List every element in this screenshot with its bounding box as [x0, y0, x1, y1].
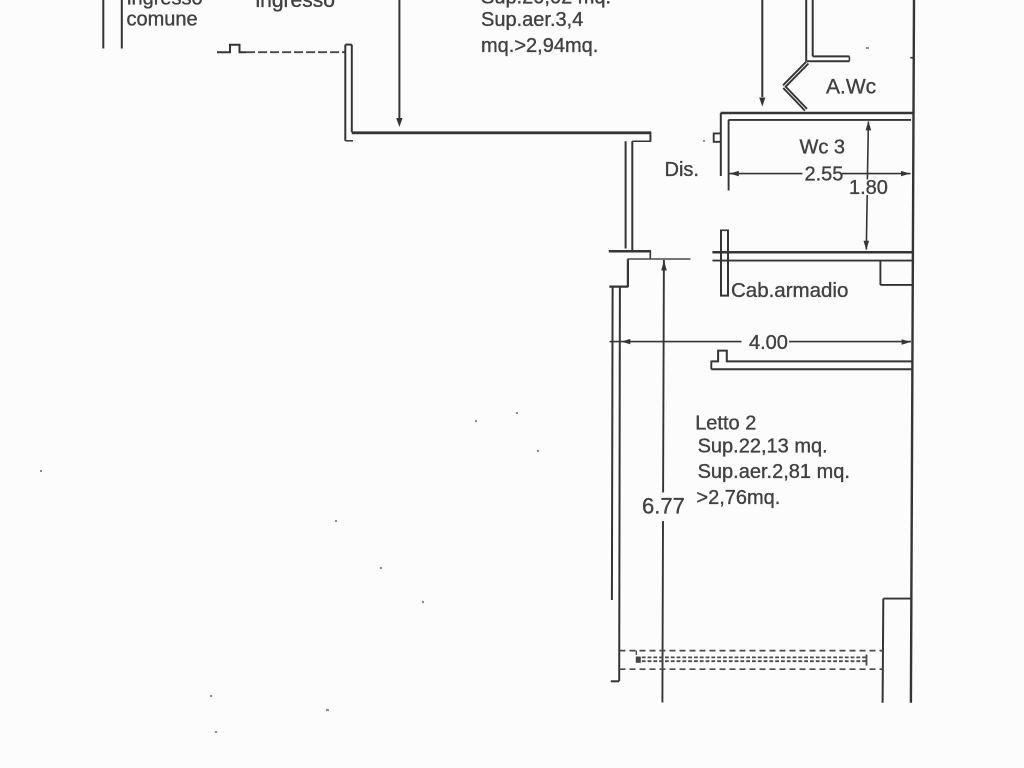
svg-text:Sup.aer.3,4: Sup.aer.3,4	[481, 9, 583, 31]
svg-text:4.00: 4.00	[749, 332, 788, 354]
svg-text:6.77: 6.77	[642, 494, 685, 519]
svg-text:mq.>2,94mq.: mq.>2,94mq.	[481, 35, 598, 57]
svg-text:Sup.22,13 mq.: Sup.22,13 mq.	[698, 436, 828, 458]
svg-text:>2,76mq.: >2,76mq.	[696, 487, 780, 509]
svg-text:2.55: 2.55	[805, 164, 844, 186]
svg-text:Cab.armadio: Cab.armadio	[731, 279, 848, 302]
svg-text:Sup.aer.2,81 mq.: Sup.aer.2,81 mq.	[698, 461, 850, 483]
svg-text:Dis.: Dis.	[665, 159, 699, 181]
svg-text:Sup.20,02 mq.: Sup.20,02 mq.	[481, 0, 611, 9]
svg-text:Letto 2: Letto 2	[695, 413, 756, 435]
svg-text:ingresso: ingresso	[256, 0, 335, 12]
svg-text:A.Wc: A.Wc	[826, 76, 876, 99]
svg-text:comune: comune	[127, 9, 198, 31]
svg-text:1.80: 1.80	[849, 177, 888, 199]
svg-text:Wc 3: Wc 3	[800, 137, 846, 159]
